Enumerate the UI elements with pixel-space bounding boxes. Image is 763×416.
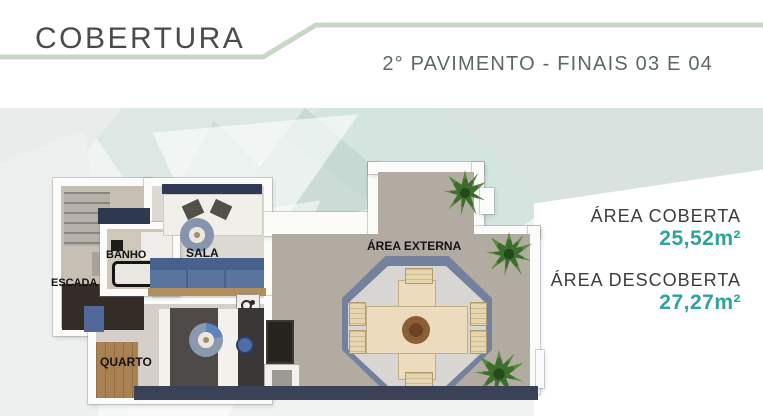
wall-bottom	[134, 386, 538, 400]
room-label-quarto: QUARTO	[100, 355, 152, 369]
table-centerpiece	[402, 316, 430, 344]
room-label-escada: ESCADA	[51, 277, 97, 289]
area-descoberta-value: 27,27m²	[659, 291, 741, 315]
dining-chair	[349, 302, 366, 326]
area-coberta-label: ÁREA COBERTA	[591, 206, 741, 227]
bedroom-wood-deck	[96, 342, 138, 398]
dining-chair	[349, 330, 366, 354]
fixture-dial	[250, 300, 255, 305]
wall-notch	[480, 188, 494, 214]
daybed-headboard	[162, 184, 262, 194]
ceiling-fan-bedroom	[189, 323, 223, 357]
bathroom-closet	[98, 208, 150, 224]
dining-chair	[470, 330, 487, 354]
barbecue-grill	[266, 320, 294, 364]
page-title: COBERTURA	[35, 22, 245, 56]
desk-chair	[236, 336, 254, 354]
wall-right-bump	[536, 350, 544, 388]
dining-chair	[405, 268, 433, 284]
area-descoberta-label: ÁREA DESCOBERTA	[551, 270, 741, 291]
wall-step	[260, 212, 382, 236]
area-coberta-value: 25,52m²	[659, 227, 741, 251]
stair-runner	[84, 306, 104, 332]
room-label-area-externa: ÁREA EXTERNA	[367, 239, 461, 253]
dining-chair	[470, 302, 487, 326]
brochure-page: COBERTURA 2° PAVIMENTO - FINAIS 03 E 04	[0, 0, 763, 416]
terrace-floor-upper	[378, 172, 474, 238]
room-label-banho: BANHO	[106, 249, 146, 261]
page-subtitle: 2° PAVIMENTO - FINAIS 03 E 04	[382, 53, 713, 76]
sofa	[150, 258, 264, 290]
room-label-sala: SALA	[186, 246, 219, 260]
